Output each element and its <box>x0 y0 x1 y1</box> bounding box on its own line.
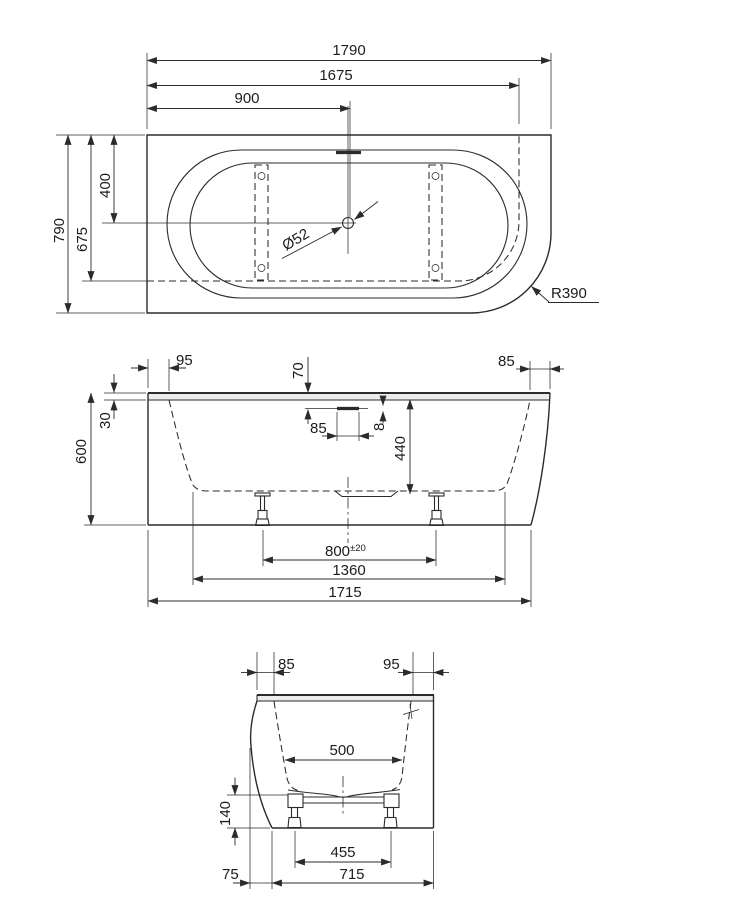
adjustable-foot-left <box>288 808 301 828</box>
dim-label: 1675 <box>319 67 352 84</box>
dim-drain-from-left: 900 <box>147 90 350 217</box>
dim-label: 715 <box>339 866 364 883</box>
dim-label: 455 <box>330 844 355 861</box>
dim-feet-spacing: 800±20 <box>263 530 436 566</box>
dim-value: 800 <box>325 543 350 560</box>
dim-label: 500 <box>329 742 354 759</box>
leader-line <box>532 287 550 303</box>
adjustable-foot-left <box>255 493 270 526</box>
overflow-position-mark <box>403 704 419 719</box>
adjustable-foot-right <box>429 493 444 526</box>
foot-block <box>432 511 441 520</box>
dim-label: 8 <box>371 423 388 431</box>
dim-label: 140 <box>217 801 234 826</box>
dim-overflow-below-rim: 70 <box>290 357 308 424</box>
interior-left-hidden <box>274 702 298 791</box>
dim-ledge-left: 85 <box>241 652 295 696</box>
leader-line <box>355 202 379 220</box>
foot-stem <box>435 496 439 511</box>
rail-block-right <box>384 794 399 808</box>
extension-lines <box>227 795 288 828</box>
dim-overflow-width: 85 <box>310 412 374 441</box>
dim-corner-radius: R390 <box>532 285 600 303</box>
support-bracket-left-hidden <box>255 165 268 280</box>
dim-ledge-right: 85 <box>498 353 564 390</box>
dim-label: 85 <box>498 353 515 370</box>
foot-stem <box>388 808 394 818</box>
foot-base <box>288 818 301 828</box>
dim-rim-thickness: 30 <box>97 374 146 429</box>
bathtub-technical-drawing: Ø52 R390 1790 1675 900 790 <box>0 0 733 917</box>
dim-label: 95 <box>176 352 193 369</box>
bracket-hole <box>432 173 439 180</box>
dim-length-to-hidden-edge: 1675 <box>147 67 519 124</box>
left-skirt-curve <box>251 701 272 828</box>
support-bracket-right-hidden <box>429 165 442 280</box>
dim-label: R390 <box>551 285 587 302</box>
foot-base <box>384 818 397 828</box>
extension-lines <box>530 361 550 390</box>
interior-profile-hidden <box>169 400 530 491</box>
dim-label: 1360 <box>332 562 365 579</box>
dim-base-height: 140 <box>217 778 288 846</box>
front-view: 95 30 600 70 8 85 <box>73 352 564 607</box>
extension-lines <box>337 412 359 441</box>
dim-width-overall: 790 <box>51 135 145 313</box>
dim-base-length: 1360 <box>193 492 505 585</box>
right-edge <box>531 393 550 525</box>
extension-lines <box>148 359 169 391</box>
dim-label: 70 <box>290 362 307 379</box>
bracket-hole <box>432 265 439 272</box>
dim-label: 440 <box>392 436 409 461</box>
dim-label: 85 <box>310 420 327 437</box>
drawing-sheet: Ø52 R390 1790 1675 900 790 <box>0 0 733 917</box>
dim-drain-diameter: Ø52 <box>279 202 378 259</box>
top-view: Ø52 R390 1790 1675 900 790 <box>51 42 599 313</box>
tub-basin-line <box>190 163 508 288</box>
extension-lines <box>257 652 274 696</box>
dim-label: 1715 <box>328 584 361 601</box>
bracket-hole <box>258 173 265 180</box>
dim-label: 30 <box>97 412 114 429</box>
dim-label: 95 <box>383 656 400 673</box>
adjustable-foot-right <box>384 808 397 828</box>
extension-lines <box>147 53 551 129</box>
dim-label: 400 <box>97 173 114 198</box>
foot-stem <box>292 808 298 818</box>
dim-label: 800±20 <box>325 543 366 560</box>
interior-right-hidden <box>392 702 411 791</box>
rail-block-left <box>288 794 303 808</box>
dim-label: 600 <box>73 439 90 464</box>
dim-label: Ø52 <box>279 225 312 254</box>
extension-lines <box>104 393 146 400</box>
dim-width-to-hidden-edge: 675 <box>74 135 147 281</box>
dim-label: 675 <box>74 227 91 252</box>
hidden-edge-dashed <box>147 135 519 281</box>
dim-tolerance: ±20 <box>350 543 366 554</box>
extension-lines <box>56 135 145 313</box>
dim-label: 790 <box>51 218 68 243</box>
dim-label: 75 <box>222 866 239 883</box>
support-rail <box>303 797 384 803</box>
tub-deck-outline <box>147 135 551 313</box>
basin-floor-line <box>288 790 400 798</box>
dim-inner-width: 500 <box>285 742 402 760</box>
foot-block <box>258 511 267 520</box>
dim-ledge-left: 95 <box>131 352 193 391</box>
dim-drain-from-back: 400 <box>97 135 114 223</box>
dim-inner-depth: 440 <box>392 400 410 495</box>
rim-band-fill <box>148 393 550 400</box>
bracket-hole <box>258 265 265 272</box>
dim-ledge-right: 95 <box>383 652 449 696</box>
dim-label: 1790 <box>332 42 365 59</box>
end-view: 85 95 500 140 455 715 <box>217 652 449 889</box>
extension-lines <box>413 652 434 696</box>
dim-label: 900 <box>234 90 259 107</box>
tub-rim-line <box>167 150 527 298</box>
dim-label: 85 <box>278 656 295 673</box>
dim-overflow-height: 8 <box>371 399 388 431</box>
drain-recess <box>335 491 398 497</box>
foot-stem <box>261 496 265 511</box>
dim-feet-spacing: 455 <box>295 831 391 868</box>
